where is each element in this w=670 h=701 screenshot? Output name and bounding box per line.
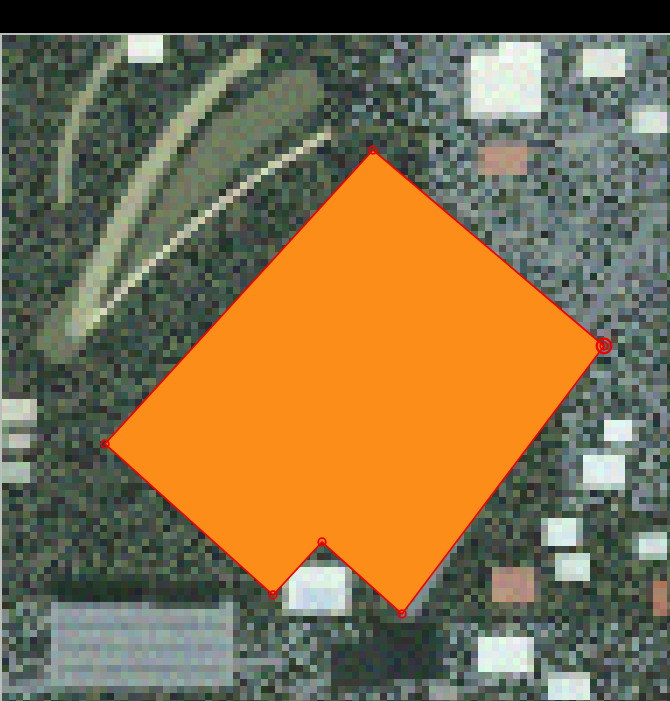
selected-vertex-center-dot [603, 345, 605, 347]
application-window [0, 0, 670, 701]
vector-overlay [0, 0, 670, 701]
feature-polygon[interactable] [105, 150, 604, 614]
